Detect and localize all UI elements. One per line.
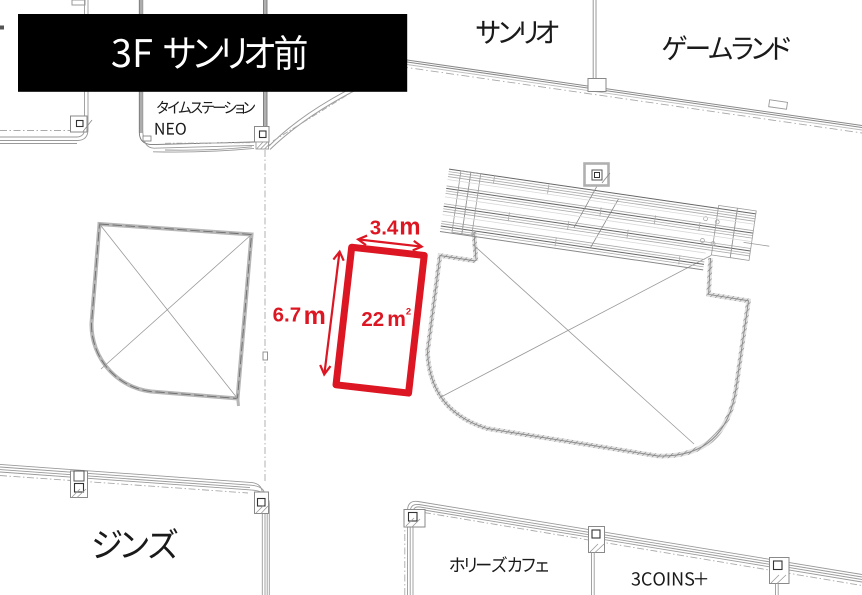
svg-text:3.4m: 3.4m [370, 213, 421, 240]
svg-text:22m2: 22m2 [361, 306, 411, 331]
svg-text:6.7m: 6.7m [273, 302, 326, 330]
